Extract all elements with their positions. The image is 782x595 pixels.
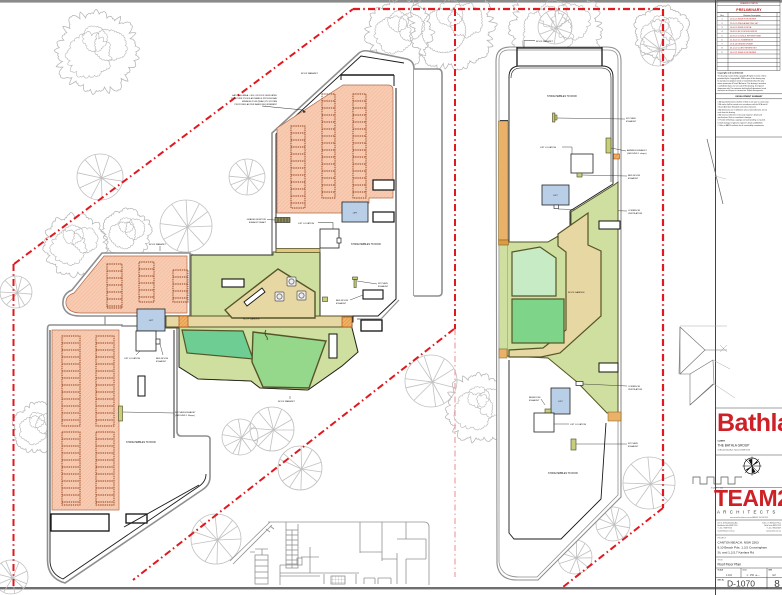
svg-text:EXHAUST: EXHAUST — [529, 399, 540, 402]
svg-text:STONE PEBBLES TO ROOF: STONE PEBBLES TO ROOF — [351, 244, 382, 246]
svg-text:1: 1 — [721, 19, 722, 21]
svg-text:Unit 5, 46 Brookhollow Ave: Unit 5, 46 Brookhollow Ave — [718, 522, 738, 525]
svg-text:DWG No.: DWG No. — [718, 580, 725, 582]
svg-text:3: 3 — [721, 27, 722, 29]
svg-text:ROOF GARDEN: ROOF GARDEN — [243, 318, 260, 321]
svg-text:specifications. Refer to consu: specifications. Refer to consultants' dr… — [718, 116, 753, 119]
svg-text:EXHAUST: EXHAUST — [336, 302, 347, 305]
svg-text:LIFT LOCATION: LIFT LOCATION — [540, 146, 557, 149]
svg-text:(GROUND 1 shops): (GROUND 1 shops) — [627, 153, 647, 155]
svg-text:St, and 1,3,5,7 Kanlara Rd: St, and 1,3,5,7 Kanlara Rd — [718, 551, 755, 555]
svg-text:ROOF PARAPET: ROOF PARAPET — [278, 400, 296, 403]
svg-text:3. All dimensions are in milli: 3. All dimensions are in millimetres unl… — [718, 108, 768, 111]
svg-text:Copyright and Confidential: Copyright and Confidential — [718, 72, 744, 75]
svg-text:LIFT: LIFT — [553, 195, 558, 197]
svg-text:9: 9 — [721, 52, 722, 54]
svg-text:KITCHEN EXHAUST: KITCHEN EXHAUST — [175, 411, 196, 414]
svg-text:ROOF GARDEN: ROOF GARDEN — [568, 291, 585, 294]
svg-text:Bathla: Bathla — [717, 409, 782, 437]
svg-text:MINIMUM 1 KW (PEAK) PV SYSTEM: MINIMUM 1 KW (PEAK) PV SYSTEM — [242, 100, 277, 103]
svg-text:www.team2.com.au: www.team2.com.au — [766, 529, 781, 532]
svg-text:TITLE:: TITLE: — [718, 560, 724, 562]
svg-text:GRADED MONITOR: GRADED MONITOR — [247, 218, 267, 221]
svg-text:KITCHEN: KITCHEN — [628, 443, 638, 445]
svg-text:DEVELOPMENT SUMMARY: DEVELOPMENT SUMMARY — [735, 95, 763, 98]
svg-text:EXHAUST: EXHAUST — [378, 285, 389, 288]
svg-text:21.10.20 CC SUBMISSION: 21.10.20 CC SUBMISSION — [730, 39, 754, 41]
svg-text:AWNING EXHAUST: AWNING EXHAUST — [627, 149, 648, 152]
svg-text:02.09.20 COUNCIL RFI RESPONSE: 02.09.20 COUNCIL RFI RESPONSE — [730, 35, 762, 37]
svg-text:BEDROOM: BEDROOM — [529, 397, 540, 399]
svg-text:4: 4 — [721, 31, 722, 33]
svg-text:THE BATHLA GROUP: THE BATHLA GROUP — [718, 444, 750, 448]
svg-text:PROJECT:: PROJECT: — [718, 538, 727, 540]
svg-text:9,10 Beach Pde, 1,3,5 Crossing: 9,10 Beach Pde, 1,3,5 Crossingham — [718, 546, 768, 550]
svg-text:LIFT: LIFT — [353, 213, 358, 215]
svg-text:STONE PEBBLES TO ROOF: STONE PEBBLES TO ROOF — [548, 473, 579, 475]
svg-text:VENTILATION: VENTILATION — [628, 388, 643, 391]
svg-text:8: 8 — [774, 579, 780, 590]
svg-text:A R C H I T E C T S: A R C H I T E C T S — [717, 510, 776, 515]
svg-text:EXHAUST: EXHAUST — [628, 445, 639, 448]
svg-text:CORRIDOR: CORRIDOR — [628, 386, 640, 388]
svg-text:Roof Floor Plan: Roof Floor Plan — [718, 563, 742, 567]
svg-text:www.team2architects.com.au A: www.team2architects.com.au ABN 46 134 46… — [730, 516, 768, 519]
svg-text:LIFT LOCATION: LIFT LOCATION — [124, 357, 141, 360]
svg-text:4. All structural elements to: 4. All structural elements to structural… — [718, 114, 763, 117]
svg-text:1 : 150 ◄—: 1 : 150 ◄— — [746, 574, 760, 577]
svg-text:(GROUND 1 Shops): (GROUND 1 Shops) — [175, 415, 195, 417]
svg-text:KITCHEN: KITCHEN — [378, 283, 388, 285]
svg-text:8: 8 — [721, 48, 722, 50]
svg-text:Bella Vista NSW 2153: Bella Vista NSW 2153 — [764, 524, 781, 527]
svg-text:7. Refer to BASIX certificate: 7. Refer to BASIX certificate for all su… — [718, 124, 765, 127]
svg-text:BED ROOM: BED ROOM — [628, 175, 640, 177]
svg-text:03.12.20 CLIENT REVIEW SET: 03.12.20 CLIENT REVIEW SET — [730, 48, 758, 50]
svg-text:2: 2 — [721, 23, 722, 25]
svg-text:LIFT: LIFT — [149, 320, 154, 322]
svg-text:BED ROOM: BED ROOM — [336, 300, 348, 302]
svg-text:1:110: 1:110 — [726, 574, 733, 577]
svg-text:SCALE: SCALE — [718, 569, 723, 572]
svg-text:D-1070: D-1070 — [727, 578, 755, 588]
svg-text:LIFT LOCATION: LIFT LOCATION — [298, 222, 315, 225]
svg-text:1. All figured dimensions shal: 1. All figured dimensions shall be verif… — [718, 101, 770, 104]
svg-text:STONE PEBBLES TO ROOF: STONE PEBBLES TO ROOF — [547, 96, 578, 98]
svg-text:14.01.21 ISSUE FOR REVIEW: 14.01.21 ISSUE FOR REVIEW — [730, 52, 756, 54]
svg-text:TEAM2: TEAM2 — [714, 485, 782, 511]
svg-text:ROOF PARAPET: ROOF PARAPET — [149, 243, 167, 246]
svg-text:6. Roof drainage to hydraulic: 6. Roof drainage to hydraulic engineer's… — [718, 121, 764, 124]
svg-text:DRN: DRN — [769, 570, 773, 572]
svg-text:Revision Description: Revision Description — [743, 14, 760, 17]
svg-text:team2@team2.com.au: team2@team2.com.au — [718, 529, 735, 532]
svg-text:LIFT: LIFT — [558, 401, 563, 403]
svg-text:@ A1: @ A1 — [743, 569, 747, 572]
svg-text:scale from this drawing.: scale from this drawing. — [718, 111, 736, 114]
svg-text:18.08.20 S4.55 MODIFICATION: 18.08.20 S4.55 MODIFICATION — [730, 30, 758, 33]
svg-text:EXHAUST SHAFT: EXHAUST SHAFT — [249, 221, 267, 224]
svg-text:relevant Australian Standards: relevant Australian Standards and codes … — [718, 106, 758, 109]
svg-text:TO FUTURE P.V/SOLAR PANELS PRO: TO FUTURE P.V/SOLAR PANELS PROVISIONAL — [231, 97, 278, 100]
svg-text:CANTON BEACH, NSW 2263: CANTON BEACH, NSW 2263 — [718, 541, 759, 545]
svg-text:2. All works shall be carried: 2. All works shall be carried out in acc… — [718, 103, 768, 106]
svg-text:DRAWING STATUS: DRAWING STATUS — [740, 2, 758, 5]
svg-text:22.05.20 PRE-DA MEETING SET: 22.05.20 PRE-DA MEETING SET — [730, 22, 759, 25]
svg-text:PROPOSED AS PER BASIX REQUIREM: PROPOSED AS PER BASIX REQUIREMENT — [235, 103, 278, 106]
svg-text:14 Brookhollow Ave, Norwest NS: 14 Brookhollow Ave, Norwest NSW 2153 — [718, 449, 751, 452]
svg-text:CORRIDOR: CORRIDOR — [628, 210, 640, 212]
svg-text:5. Provide all flashings, capp: 5. Provide all flashings, cappings and w… — [718, 119, 766, 122]
svg-text:STONE PEBBLES TO ROOF: STONE PEBBLES TO ROOF — [126, 442, 157, 444]
svg-text:Suite 2, 6 Meridian Place: Suite 2, 6 Meridian Place — [762, 522, 781, 525]
svg-text:KITCHEN: KITCHEN — [626, 118, 636, 120]
svg-text:6: 6 — [721, 39, 722, 41]
svg-text:CLIENT:: CLIENT: — [718, 441, 726, 443]
svg-text:5: 5 — [721, 35, 722, 37]
svg-text:ROOF PARAPET: ROOF PARAPET — [301, 72, 319, 75]
svg-text:LIFT LOCATION: LIFT LOCATION — [570, 423, 587, 426]
svg-text:EXHAUST: EXHAUST — [626, 120, 637, 123]
svg-text:PRELIMINARY: PRELIMINARY — [736, 8, 762, 12]
svg-text:VENTILATION: VENTILATION — [628, 212, 643, 215]
svg-text:15.05.20 ISSUE FOR REVIEW: 15.05.20 ISSUE FOR REVIEW — [730, 19, 756, 21]
svg-text:EXHAUST: EXHAUST — [156, 360, 167, 363]
svg-text:ROOF PARAPET: ROOF PARAPET — [536, 40, 554, 43]
svg-text:10.06.20 ISSUE FOR DA: 10.06.20 ISSUE FOR DA — [730, 26, 752, 29]
svg-text:Rev: Rev — [720, 15, 723, 17]
svg-text:EXHAUST: EXHAUST — [628, 177, 639, 180]
svg-text:GZ: GZ — [772, 574, 776, 577]
svg-text:7: 7 — [721, 44, 722, 46]
svg-text:HATCHED AREA + 30% OF ROOF DED: HATCHED AREA + 30% OF ROOF DEDICATED — [232, 94, 277, 97]
svg-text:11.11.20 DESIGN UPDATE: 11.11.20 DESIGN UPDATE — [730, 43, 754, 46]
svg-text:BED ROOM: BED ROOM — [156, 358, 168, 360]
svg-text:and setout on site prior to co: and setout on site prior to construction… — [718, 89, 764, 92]
